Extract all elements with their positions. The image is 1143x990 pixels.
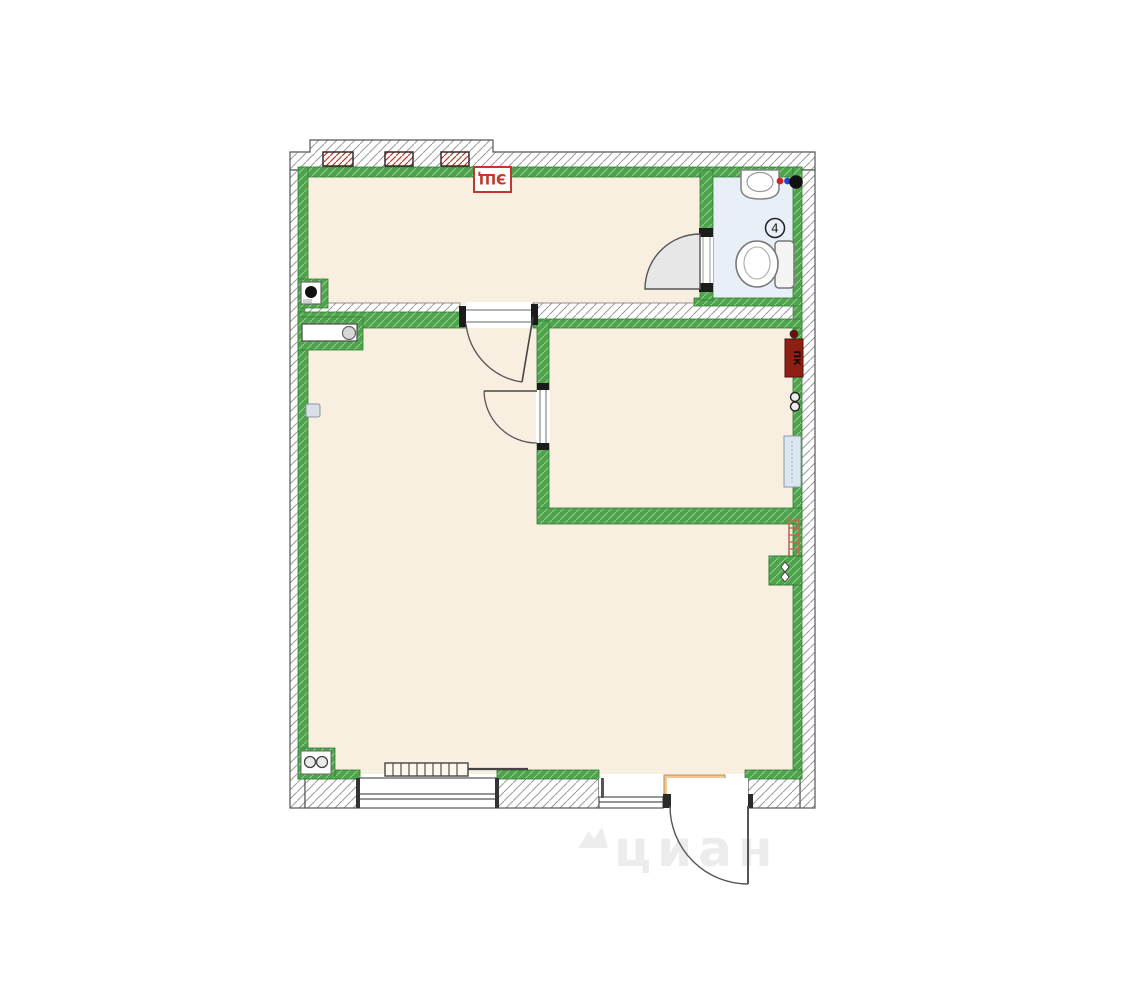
wall-left-lining [298,167,308,779]
stack-pipe-icon [789,175,803,189]
riser-pipe-icon [305,286,317,298]
bedroom-wall-upper [537,321,549,390]
toilet-icon [736,241,794,288]
door-jamb [699,228,713,237]
riser [298,279,328,308]
door-jamb [537,443,549,450]
bedroom-wall-lower [537,443,549,510]
door-jamb [748,794,753,808]
main-room-floor-upper [306,325,537,525]
window-large [356,778,499,808]
corner-pipes [298,748,335,779]
counter-column [302,324,357,341]
bedroom-floor [549,326,795,509]
electrical-panel-label: ЭЩ [474,167,511,192]
electrical-panel-text: ЭЩ [478,170,507,186]
outer-wall-top [290,140,815,170]
pipe-icon [317,757,328,768]
fire-cabinet-text: ПК [791,351,801,367]
outer-wall-bottom-3 [748,778,800,808]
door-jamb [537,383,549,390]
watermark-text: циан [614,820,778,878]
outer-wall-bottom-2 [497,778,599,808]
main-room-floor-lower [306,522,795,774]
duct-box [769,556,802,585]
pipe-icon [305,757,316,768]
door-jamb [459,306,466,327]
bedroom-radiator [784,436,801,487]
hot-valve-icon [777,178,784,185]
wall-meter-box [306,404,320,417]
wall-top-lining [300,167,802,177]
door-jamb [663,794,671,808]
watermark-bird-icon [578,827,608,848]
floor-plan-svg: ЭЩ 4 ПК [0,0,1143,990]
outer-wall-bottom-1 [305,778,358,808]
door-jamb [699,283,713,292]
room-floors [305,174,795,774]
vent-grille-icon [441,152,469,166]
hallway-floor [305,174,703,305]
vent-grilles [323,152,469,166]
vent-grille-icon [323,152,353,166]
window-narrow [599,778,663,808]
floor-plan-page: ЭЩ 4 ПК [0,0,1143,990]
vent-grille-icon [385,152,413,166]
bedroom-bottom-wall [537,508,802,524]
svg-text:4: 4 [771,222,779,236]
